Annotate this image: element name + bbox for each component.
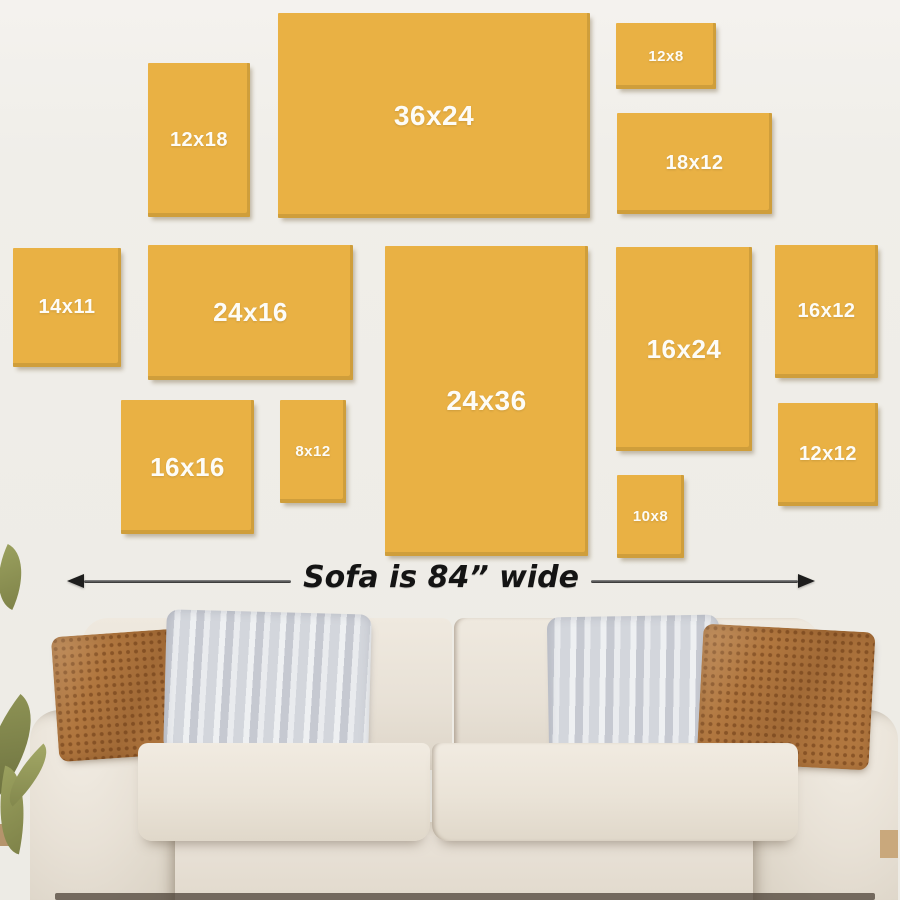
canvas-panel-8x12: 8x12 [280, 400, 346, 503]
canvas-size-label: 24x36 [446, 385, 526, 417]
canvas-size-label: 36x24 [394, 100, 474, 132]
canvas-size-label: 12x12 [799, 443, 857, 466]
size-guide-scene: 36x24 12x18 12x8 18x12 14x11 24x16 24x36… [0, 0, 900, 900]
sofa-width-annotation: Sofa is 84” wide [67, 559, 815, 603]
canvas-panel-16x24: 16x24 [616, 247, 752, 451]
canvas-size-label: 16x24 [647, 334, 722, 365]
canvas-size-label: 14x11 [38, 296, 95, 319]
canvas-size-label: 16x16 [150, 452, 225, 483]
wood-frame-edge [880, 830, 898, 858]
canvas-panel-14x11: 14x11 [13, 248, 121, 367]
canvas-size-label: 12x18 [170, 129, 228, 152]
canvas-panel-12x12: 12x12 [778, 403, 878, 506]
arrow-left-icon [67, 574, 84, 588]
canvas-panel-12x8: 12x8 [616, 23, 716, 89]
arrow-line-right [591, 580, 798, 583]
canvas-size-grid: 36x24 12x18 12x8 18x12 14x11 24x16 24x36… [0, 0, 900, 900]
sofa-width-text: Sofa is 84” wide [291, 560, 591, 595]
canvas-panel-24x16: 24x16 [148, 245, 353, 380]
canvas-panel-18x12: 18x12 [617, 113, 772, 214]
canvas-size-label: 8x12 [295, 443, 330, 460]
arrow-right-icon [798, 574, 815, 588]
arrow-line-left [84, 580, 291, 583]
canvas-panel-16x12: 16x12 [775, 245, 878, 378]
canvas-panel-24x36: 24x36 [385, 246, 588, 556]
canvas-size-label: 18x12 [665, 152, 723, 175]
canvas-panel-12x18: 12x18 [148, 63, 250, 217]
canvas-size-label: 24x16 [213, 297, 288, 328]
canvas-panel-10x8: 10x8 [617, 475, 684, 558]
canvas-size-label: 16x12 [797, 300, 855, 323]
canvas-panel-36x24: 36x24 [278, 13, 590, 218]
canvas-size-label: 12x8 [648, 48, 683, 65]
canvas-panel-16x16: 16x16 [121, 400, 254, 534]
canvas-size-label: 10x8 [633, 508, 668, 525]
